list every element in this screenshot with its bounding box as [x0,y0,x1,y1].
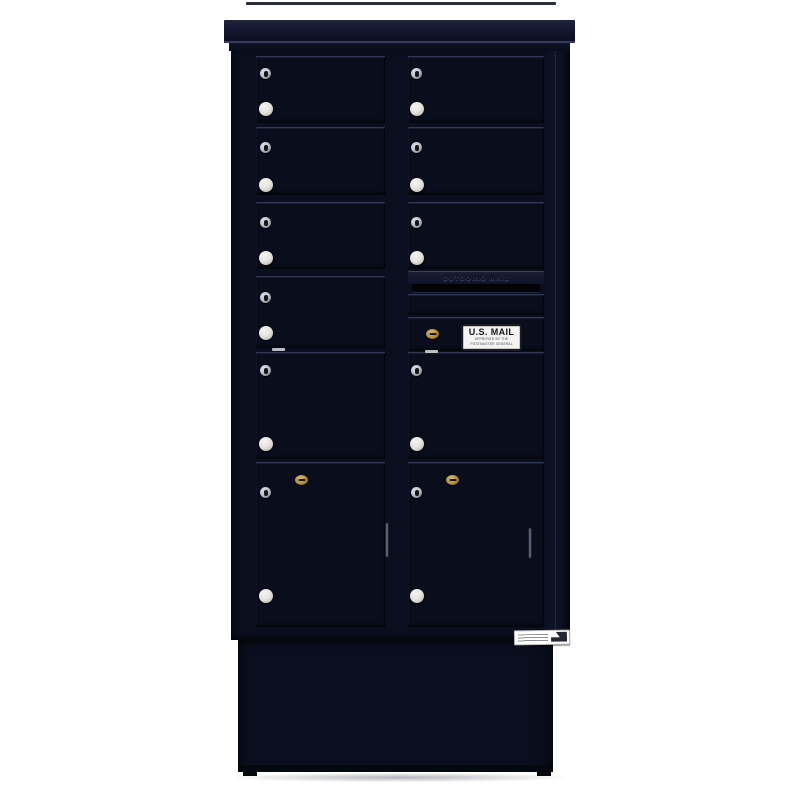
tenant-door-6 [408,56,544,123]
tenant-door-1 [256,56,385,123]
manufacturer-logo [551,632,567,642]
certification-text-lines [518,633,548,641]
usps-approved-decal: U.S. MAIL APPROVED BY THE POSTMASTER GEN… [461,324,522,351]
id-card-slot [272,348,285,351]
crown-band [229,43,570,51]
collection-door: U.S. MAIL APPROVED BY THE POSTMASTER GEN… [408,317,544,351]
tenant-door-9 [408,352,544,459]
parcel-door-right [408,462,544,627]
crown-cap [224,20,575,43]
decal-line-1: U.S. MAIL [469,328,515,337]
cam-lock [260,142,271,153]
tenant-door-5 [256,352,385,459]
arrow-lock [426,329,439,339]
cam-lock [411,487,422,498]
cam-lock [411,142,422,153]
cam-lock [260,365,271,376]
door-knob [259,251,273,265]
outgoing-mail-plate: OUTGOING MAIL [408,271,544,284]
door-knob [259,437,273,451]
door-knob [410,251,424,265]
id-card-slot [425,350,438,353]
cam-lock [411,217,422,228]
decal-line-3: POSTMASTER GENERAL [470,343,512,346]
arrow-lock [295,475,308,485]
door-knob [259,589,273,603]
tenant-door-7 [408,127,544,195]
mail-slot [412,284,540,292]
tenant-door-3 [256,202,385,269]
tenant-door-4 [256,276,385,348]
decal-line-2: APPROVED BY THE [475,338,509,341]
tenant-door-8 [408,202,544,269]
door-knob [259,326,273,340]
cam-lock [260,487,271,498]
door-knob [410,102,424,116]
ground-shadow [234,773,564,782]
door-knob [259,178,273,192]
product-photo-stage: OUTGOING MAIL U.S. MAIL APPROVED BY THE … [0,0,800,800]
outgoing-mail-label: OUTGOING MAIL [443,275,510,281]
hopper-panel [408,294,544,315]
edge-reflection [386,523,388,557]
tenant-door-2 [256,127,385,195]
cam-lock [411,68,422,79]
door-knob [259,102,273,116]
cam-lock [260,217,271,228]
cam-lock [260,292,271,303]
arrow-lock [446,475,459,485]
cam-lock [260,68,271,79]
mailbox-cabinet: OUTGOING MAIL U.S. MAIL APPROVED BY THE … [231,51,570,640]
door-knob [410,437,424,451]
cam-lock [411,365,422,376]
top-rail [246,2,556,5]
side-panel-seam [555,51,556,640]
edge-reflection [529,528,531,558]
door-knob [410,589,424,603]
pedestal-base [238,640,553,772]
door-knob [410,178,424,192]
certification-label [514,630,570,646]
parcel-door-left [256,462,385,627]
